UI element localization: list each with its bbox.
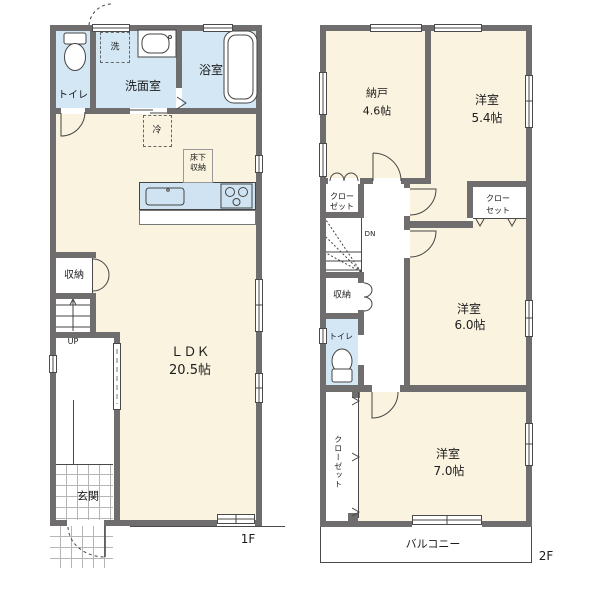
wall-segment	[320, 178, 328, 184]
line	[92, 258, 93, 293]
entrance-porch	[50, 526, 113, 568]
balcony-edge	[320, 527, 321, 563]
wall-segment	[50, 25, 56, 526]
wall-segment	[167, 108, 256, 114]
stairs-area-1f	[56, 299, 90, 332]
wall-segment	[467, 181, 526, 187]
hallway-2f	[361, 184, 404, 392]
room-size-bedroom-a: 5.4帖	[471, 111, 502, 125]
window	[434, 24, 482, 32]
wall-segment	[50, 252, 96, 258]
wall-segment	[50, 520, 67, 526]
closet-label: ゼット	[330, 202, 354, 212]
window	[525, 300, 533, 337]
floor-label-2f: 2F	[539, 549, 554, 563]
wall-segment	[358, 272, 364, 283]
wall-segment	[50, 332, 120, 338]
closet-label-vertical: クローゼット	[333, 435, 343, 489]
window	[370, 24, 422, 32]
window	[319, 143, 327, 177]
wall-segment	[90, 31, 96, 108]
line	[73, 400, 74, 464]
window-swing-arc	[89, 4, 111, 25]
window	[319, 328, 327, 344]
window	[92, 24, 130, 32]
room-label-washroom: 洗面室	[125, 79, 161, 93]
window	[49, 355, 57, 373]
closet-label: セット	[486, 206, 510, 216]
room-label-storage-1f: 収納	[64, 270, 84, 282]
wall-segment	[482, 521, 532, 527]
room-label-ldk: ＬＤＫ	[170, 345, 209, 361]
window	[255, 373, 263, 403]
room-size-ldk: 20.5帖	[169, 363, 211, 379]
room-bedroom-b-strip	[473, 219, 526, 227]
washer-label: 洗	[110, 43, 119, 54]
room-size-bedroom-b: 6.0帖	[454, 318, 485, 332]
kitchen-shelf	[139, 210, 256, 225]
wall-segment	[85, 108, 130, 114]
room-label-nando: 納戸	[366, 86, 388, 99]
closet-label: クロー	[486, 194, 510, 204]
wall-segment	[358, 319, 364, 335]
wall-segment	[348, 513, 358, 521]
window	[525, 423, 533, 466]
floor-plan-canvas: トイレ 洗面室 浴室 洗 冷 床下 収納 ＬＤＫ 20.5帖 収納 UP 玄関 …	[0, 0, 600, 599]
room-label-bedroom-a: 洋室	[475, 93, 499, 107]
window	[525, 75, 533, 128]
window	[203, 24, 233, 32]
wall-segment	[425, 31, 431, 184]
wall-segment	[404, 258, 410, 392]
wall-segment	[404, 221, 473, 228]
window	[255, 279, 263, 332]
room-label-toilet-1f: トイレ	[58, 90, 88, 102]
wall-segment	[56, 108, 61, 114]
floor-label-1f: 1F	[241, 532, 256, 546]
underfloor-label: 収納	[190, 163, 206, 173]
room-label-entrance: 玄関	[77, 489, 99, 502]
room-size-bedroom-c: 7.0帖	[433, 464, 464, 478]
stairs-area-2f	[326, 218, 361, 272]
sliding-door	[113, 343, 121, 410]
sliding-window	[412, 515, 482, 525]
wall-segment	[320, 385, 372, 392]
stairs-down-label: DN	[365, 230, 376, 238]
sliding-door-lines	[130, 110, 167, 113]
line	[473, 218, 526, 219]
wall-segment	[256, 25, 262, 526]
line	[358, 392, 359, 518]
line	[56, 464, 113, 465]
wall-segment	[176, 31, 182, 88]
wall-segment	[467, 181, 473, 218]
wall-segment	[404, 184, 410, 188]
wall-segment	[90, 299, 96, 332]
room-label-storage-2f: 収納	[333, 291, 351, 302]
ground-line-2f	[320, 562, 532, 563]
window	[255, 155, 263, 173]
underfloor-label: 床下	[190, 153, 206, 163]
room-label-bedroom-c: 洋室	[436, 447, 460, 461]
fridge-label: 冷	[152, 126, 161, 137]
closet-label: クロー	[330, 192, 354, 202]
room-size-nando: 4.6帖	[363, 104, 392, 117]
balcony-edge	[531, 527, 532, 563]
room-label-toilet-2f: トイレ	[329, 332, 353, 342]
balcony-label: バルコニー	[406, 537, 461, 550]
window	[319, 72, 327, 115]
wall-segment	[404, 216, 410, 230]
room-label-bathroom: 浴室	[199, 63, 223, 77]
line	[361, 218, 362, 272]
wall-segment	[400, 385, 532, 392]
wall-segment	[320, 521, 412, 527]
room-label-bedroom-b: 洋室	[457, 302, 481, 316]
wall-segment	[320, 212, 364, 218]
room-toilet-2f	[326, 319, 358, 385]
room-bedroom-a-ext	[410, 181, 467, 221]
sliding-window	[217, 514, 255, 524]
ground-line-1f	[130, 526, 285, 527]
kitchen-counter	[139, 182, 256, 210]
stairs-up-label: UP	[68, 337, 79, 347]
